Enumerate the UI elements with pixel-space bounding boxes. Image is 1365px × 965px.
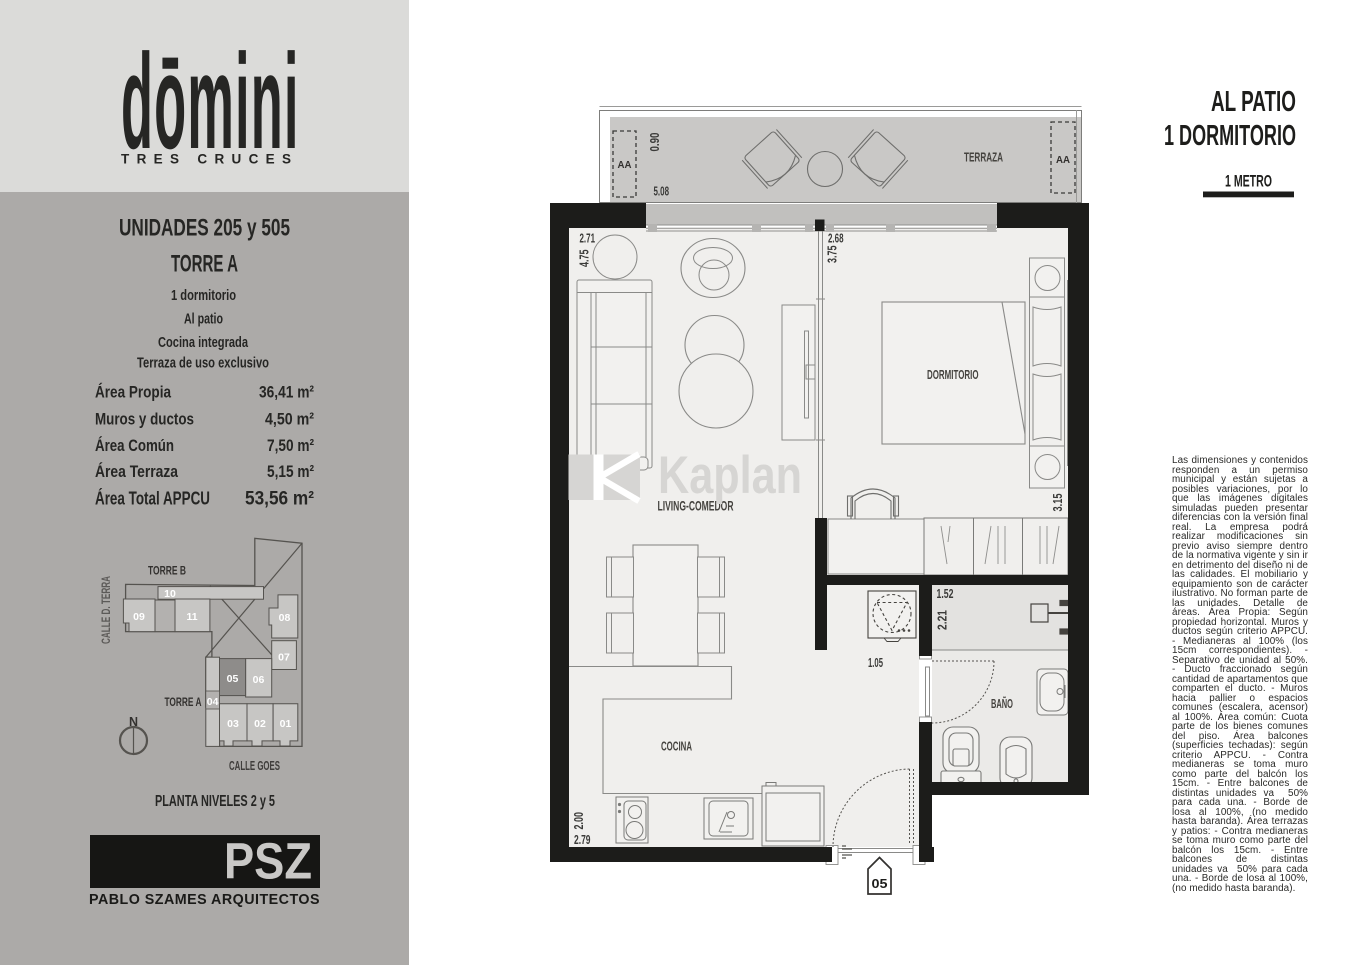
svg-text:Área Común: Área Común bbox=[95, 436, 174, 455]
svg-text:05: 05 bbox=[872, 876, 888, 891]
svg-text:Área Terraza: Área Terraza bbox=[95, 462, 178, 481]
svg-text:CALLE GOES: CALLE GOES bbox=[229, 759, 280, 773]
svg-text:1.52: 1.52 bbox=[937, 587, 954, 601]
svg-text:TORRE A: TORRE A bbox=[171, 251, 238, 278]
svg-text:05: 05 bbox=[227, 673, 239, 685]
svg-text:11: 11 bbox=[186, 611, 197, 623]
svg-text:TORRE A: TORRE A bbox=[165, 695, 202, 709]
svg-text:AA: AA bbox=[1056, 154, 1070, 166]
svg-text:N: N bbox=[129, 715, 138, 729]
svg-text:10: 10 bbox=[164, 588, 176, 600]
svg-text:COCINA: COCINA bbox=[661, 740, 692, 754]
svg-text:07: 07 bbox=[278, 652, 290, 664]
svg-text:3.15: 3.15 bbox=[1051, 493, 1065, 511]
svg-text:PABLO SZAMES ARQUITECTOS: PABLO SZAMES ARQUITECTOS bbox=[89, 891, 320, 908]
svg-text:2.79: 2.79 bbox=[574, 833, 591, 847]
svg-text:1 DORMITORIO: 1 DORMITORIO bbox=[1164, 120, 1296, 152]
svg-text:AA: AA bbox=[618, 159, 632, 171]
svg-text:2.71: 2.71 bbox=[580, 232, 596, 246]
svg-text:TERRAZA: TERRAZA bbox=[964, 150, 1003, 165]
svg-text:01: 01 bbox=[280, 718, 292, 730]
svg-text:Al patio: Al patio bbox=[184, 312, 223, 328]
svg-text:09: 09 bbox=[133, 611, 145, 623]
svg-text:1 dormitorio: 1 dormitorio bbox=[171, 288, 236, 304]
svg-text:PLANTA NIVELES 2 y 5: PLANTA NIVELES 2 y 5 bbox=[155, 793, 275, 810]
svg-text:4,50 m²: 4,50 m² bbox=[265, 410, 314, 429]
svg-text:AL PATIO: AL PATIO bbox=[1211, 86, 1296, 118]
svg-text:Terraza de uso exclusivo: Terraza de uso exclusivo bbox=[137, 356, 269, 372]
svg-text:TORRE B: TORRE B bbox=[148, 564, 186, 578]
svg-text:1 METRO: 1 METRO bbox=[1225, 172, 1272, 191]
svg-text:3.75: 3.75 bbox=[826, 245, 840, 263]
svg-text:5.08: 5.08 bbox=[654, 185, 670, 199]
svg-text:7,50 m²: 7,50 m² bbox=[267, 436, 314, 455]
svg-text:5,15 m²: 5,15 m² bbox=[267, 462, 314, 481]
svg-text:02: 02 bbox=[254, 718, 266, 730]
svg-text:Kaplan: Kaplan bbox=[658, 446, 802, 505]
svg-text:BAÑO: BAÑO bbox=[991, 696, 1013, 711]
svg-text:DORMITORIO: DORMITORIO bbox=[927, 367, 979, 382]
svg-text:08: 08 bbox=[279, 612, 291, 624]
svg-text:53,56 m²: 53,56 m² bbox=[245, 488, 314, 510]
svg-text:UNIDADES 205 y 505: UNIDADES 205 y 505 bbox=[119, 215, 290, 242]
svg-text:1.05: 1.05 bbox=[868, 656, 883, 670]
svg-text:03: 03 bbox=[227, 718, 239, 730]
svg-text:06: 06 bbox=[253, 674, 265, 686]
svg-text:2.00: 2.00 bbox=[572, 812, 586, 830]
svg-text:Área Propia: Área Propia bbox=[95, 383, 171, 402]
svg-text:Cocina integrada: Cocina integrada bbox=[158, 335, 249, 351]
svg-text:PSZ: PSZ bbox=[224, 833, 312, 890]
svg-text:2.21: 2.21 bbox=[936, 610, 950, 630]
svg-text:0.90: 0.90 bbox=[648, 132, 662, 151]
svg-text:CALLE D. TERRA: CALLE D. TERRA bbox=[101, 576, 113, 644]
svg-text:36,41 m²: 36,41 m² bbox=[259, 383, 314, 402]
svg-text:04: 04 bbox=[207, 696, 219, 708]
svg-text:4.75: 4.75 bbox=[578, 249, 592, 267]
svg-text:2.68: 2.68 bbox=[828, 232, 844, 246]
svg-text:Área Total APPCU: Área Total APPCU bbox=[95, 488, 210, 509]
svg-text:Muros y ductos: Muros y ductos bbox=[95, 410, 194, 429]
